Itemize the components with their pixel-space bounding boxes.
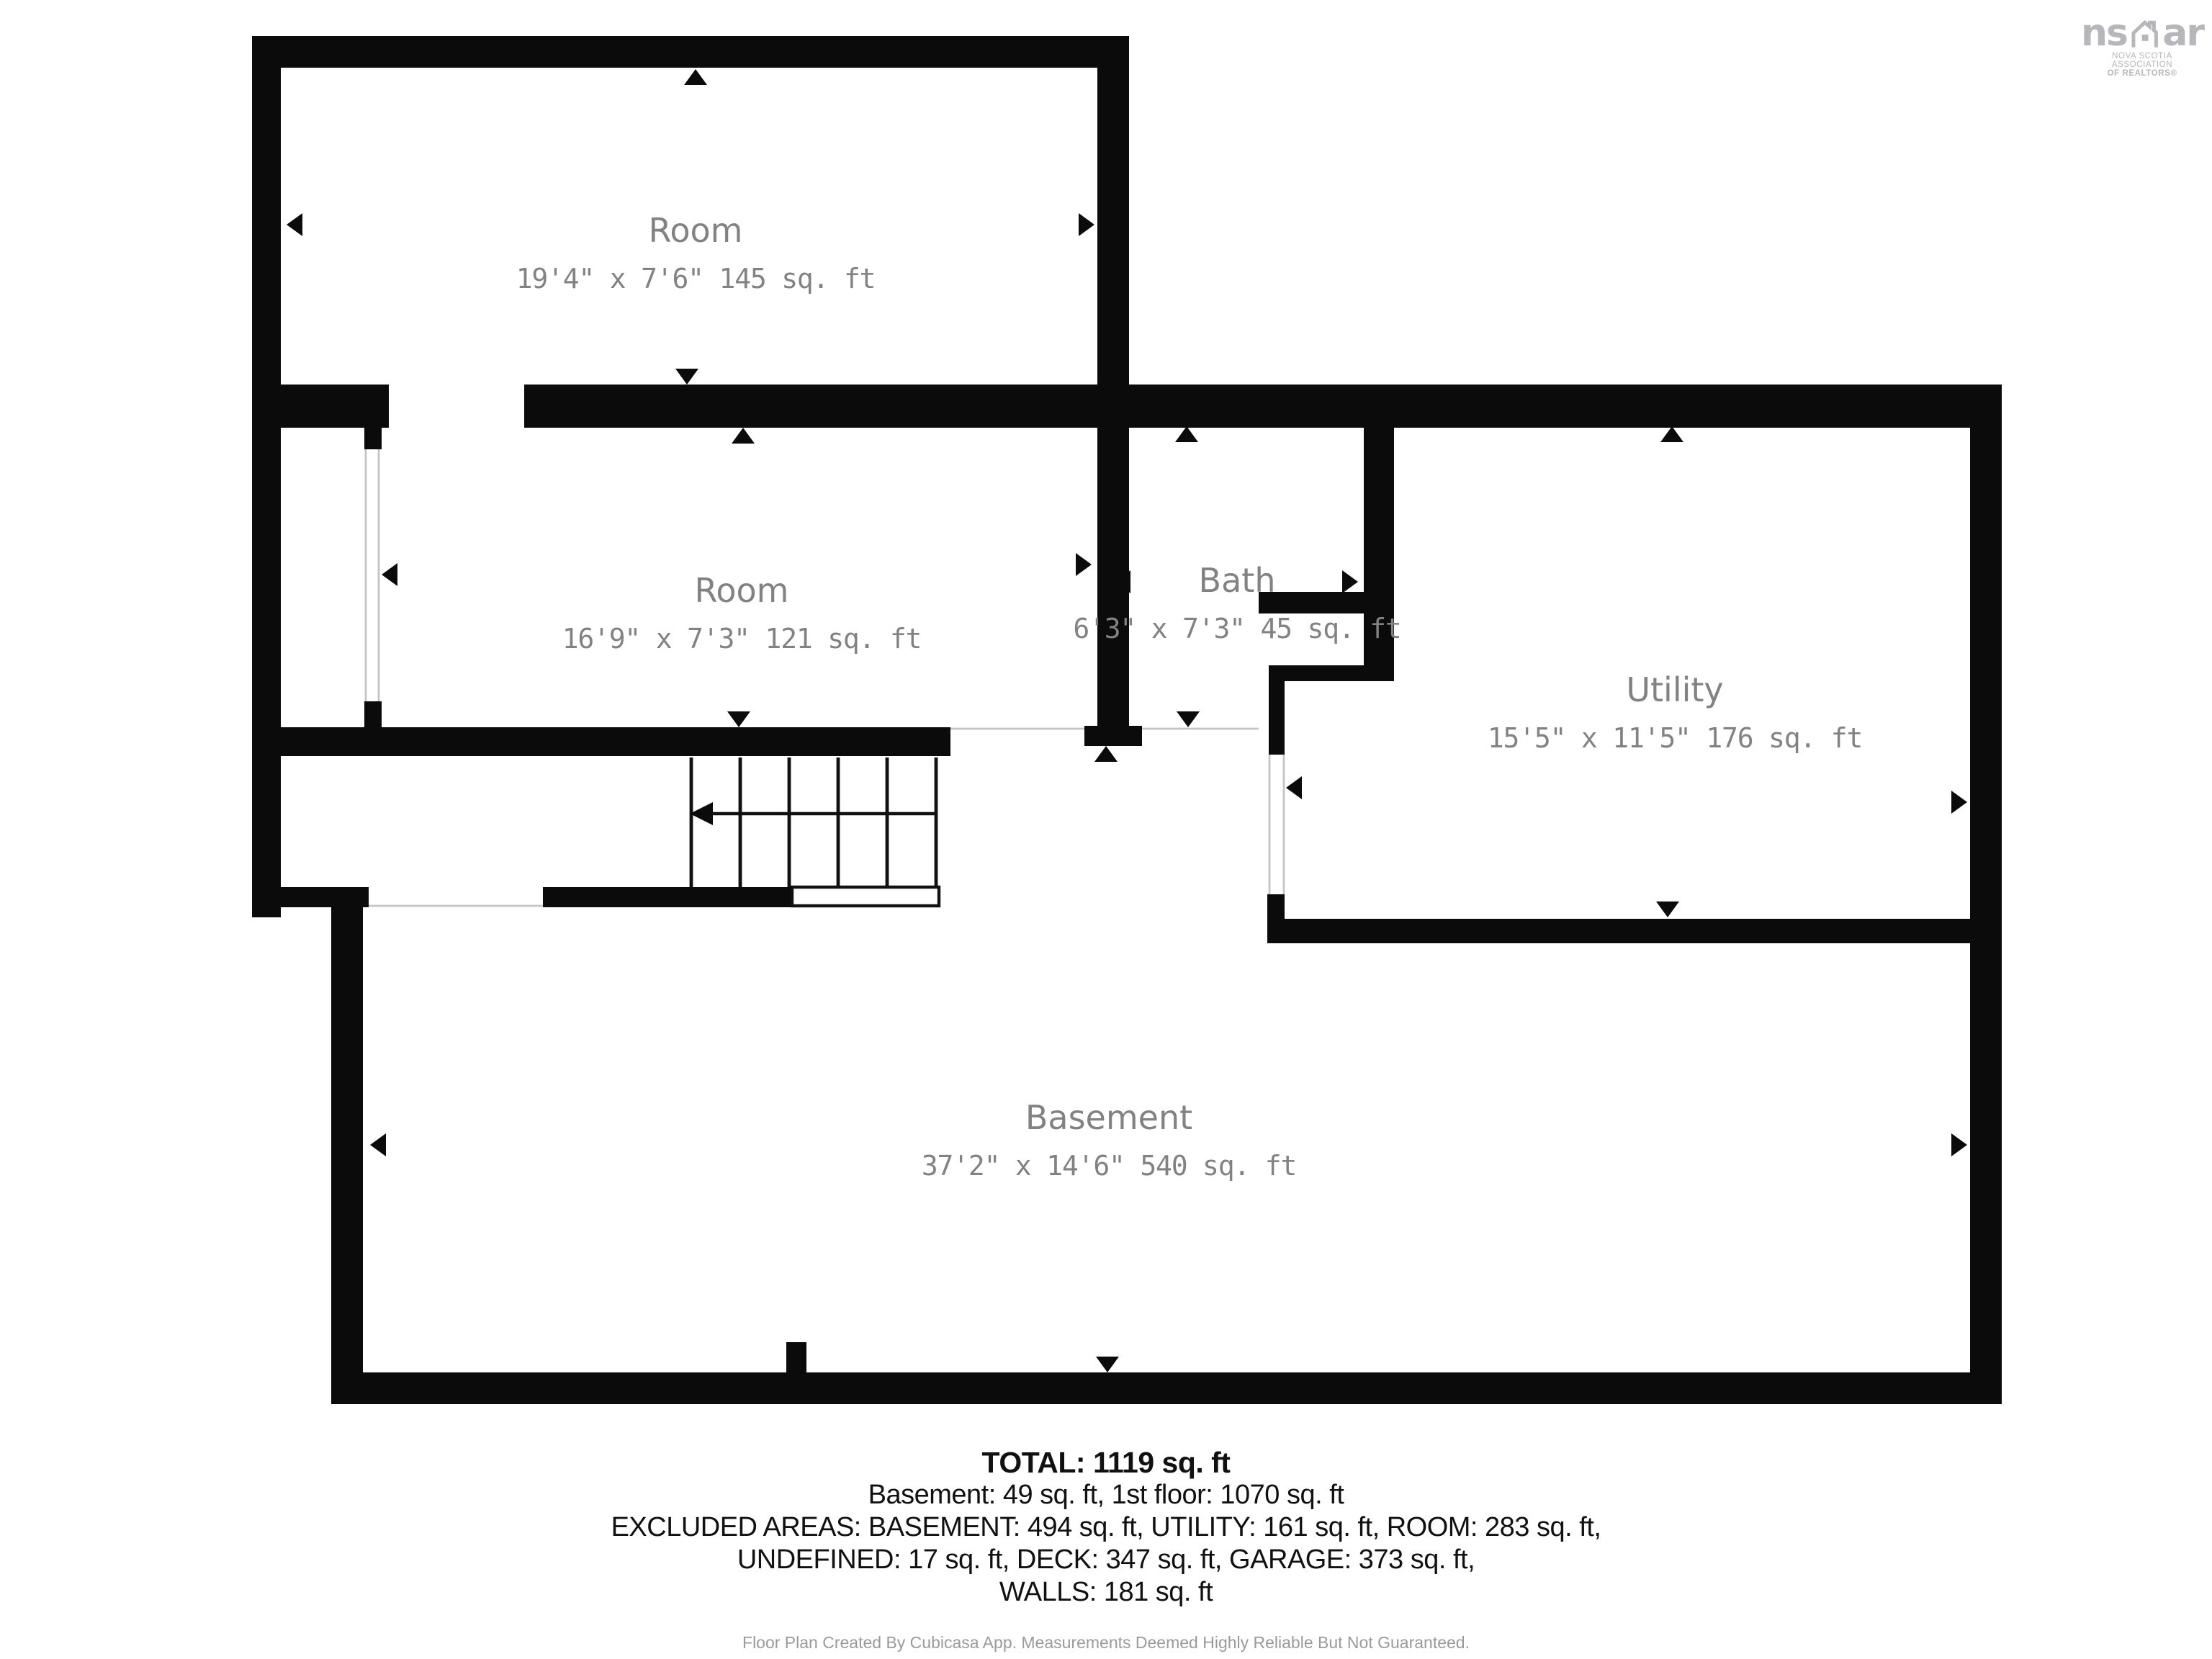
arrow-left-icon [1286,776,1302,799]
arrow-up-icon [732,428,755,444]
room-label-utility: Utility 15'5" x 11'5" 176 sq. ft [1488,670,1862,754]
arrow-right-icon [1076,553,1092,576]
room-name: Basement [1025,1098,1192,1137]
arrow-right-icon [1079,213,1094,236]
arrow-down-icon [675,369,698,385]
nsar-logo: ns ar NOVA SCOTIA ASSOCIATION OF REALTOR… [2081,17,2203,78]
room-label-basement: Basement 37'2" x 14'6" 540 sq. ft [922,1098,1296,1182]
arrow-right-icon [1342,570,1358,593]
room-label-middle-room: Room 16'9" x 7'3" 121 sq. ft [562,571,922,655]
arrow-down-icon [727,711,750,727]
arrow-right-icon [1951,791,1967,814]
arrow-left-icon [382,563,397,586]
arrow-right-icon [1951,1133,1967,1156]
footer-disclaimer: Floor Plan Created By Cubicasa App. Meas… [0,1633,2212,1653]
room-dims: 6'3" x 7'3" 45 sq. ft [1073,613,1401,644]
room-name: Utility [1626,670,1723,709]
floorplan-svg: Room 19'4" x 7'6" 145 sq. ft Room 16'9" … [0,0,2212,1659]
room-name: Room [695,571,789,610]
summary-excluded-1: EXCLUDED AREAS: BASEMENT: 494 sq. ft, UT… [0,1511,2212,1544]
room-dims: 15'5" x 11'5" 176 sq. ft [1488,722,1862,754]
arrow-down-icon [1656,902,1679,917]
room-dims: 16'9" x 7'3" 121 sq. ft [562,623,922,655]
summary-floors: Basement: 49 sq. ft, 1st floor: 1070 sq.… [0,1479,2212,1511]
room-name: Room [649,211,743,250]
logo-org-line2: OF REALTORS® [2081,69,2203,78]
arrow-down-icon [1096,1357,1119,1372]
arrow-left-icon [287,213,302,236]
summary-excluded-2: UNDEFINED: 17 sq. ft, DECK: 347 sq. ft, … [0,1544,2212,1576]
arrow-up-icon [1094,746,1118,762]
logo-text-ar: ar [2162,17,2203,49]
area-summary: TOTAL: 1119 sq. ft Basement: 49 sq. ft, … [0,1446,2212,1609]
summary-walls: WALLS: 181 sq. ft [0,1576,2212,1609]
stairs-direction-arrow [690,802,935,825]
walls [252,36,2002,1404]
logo-text-ns: ns [2081,17,2127,49]
room-label-top-room: Room 19'4" x 7'6" 145 sq. ft [516,211,876,295]
house-icon [2128,17,2161,49]
room-dims: 19'4" x 7'6" 145 sq. ft [516,263,876,295]
arrow-left-icon [370,1133,386,1156]
staircase [690,757,939,906]
arrow-up-icon [1175,426,1198,442]
arrow-up-icon [684,69,707,85]
room-name: Bath [1199,561,1276,600]
arrow-up-icon [1660,426,1683,442]
arrow-down-icon [1177,711,1200,727]
summary-total: TOTAL: 1119 sq. ft [0,1446,2212,1479]
stairs-landing-opening [792,887,939,906]
room-dims: 37'2" x 14'6" 540 sq. ft [922,1150,1296,1182]
wall-openings [366,449,1284,906]
nsar-logo-mark: ns ar [2081,17,2203,49]
